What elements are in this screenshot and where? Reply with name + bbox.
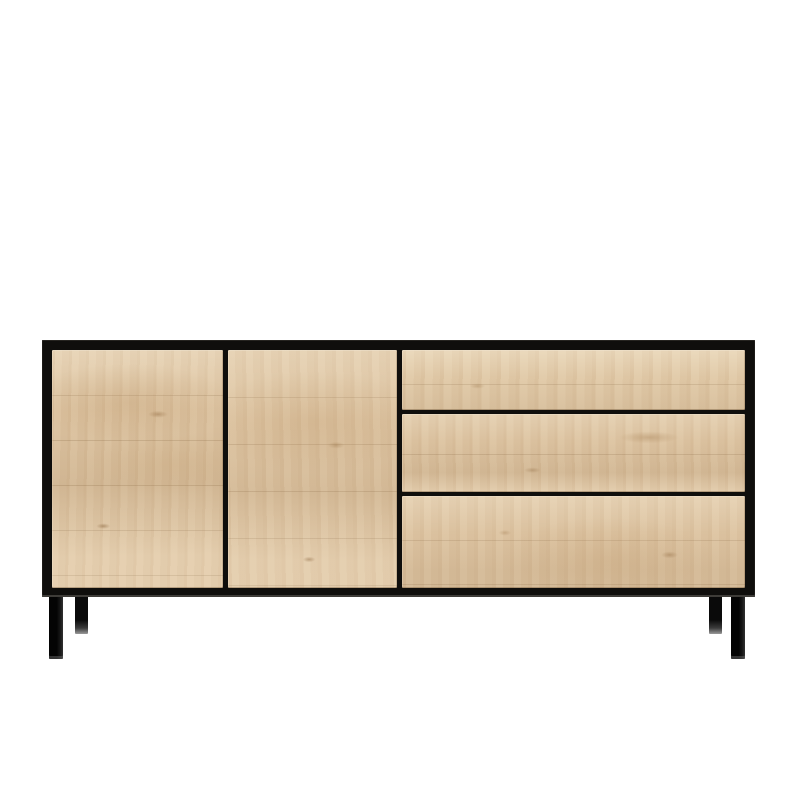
bottom-drawer-panel: [402, 496, 745, 588]
top-drawer-panel: [402, 350, 745, 410]
sideboard-body: [42, 340, 755, 597]
back-right-leg: [709, 597, 722, 634]
drawer-stack: [402, 350, 745, 588]
middle-door-panel: [228, 350, 397, 588]
middle-drawer-panel: [402, 414, 745, 492]
product-photo: [0, 0, 800, 800]
front-right-leg: [731, 597, 745, 659]
sideboard-front: [52, 350, 745, 588]
front-left-leg: [49, 597, 63, 659]
back-left-leg: [75, 597, 88, 634]
left-door-panel: [52, 350, 223, 588]
